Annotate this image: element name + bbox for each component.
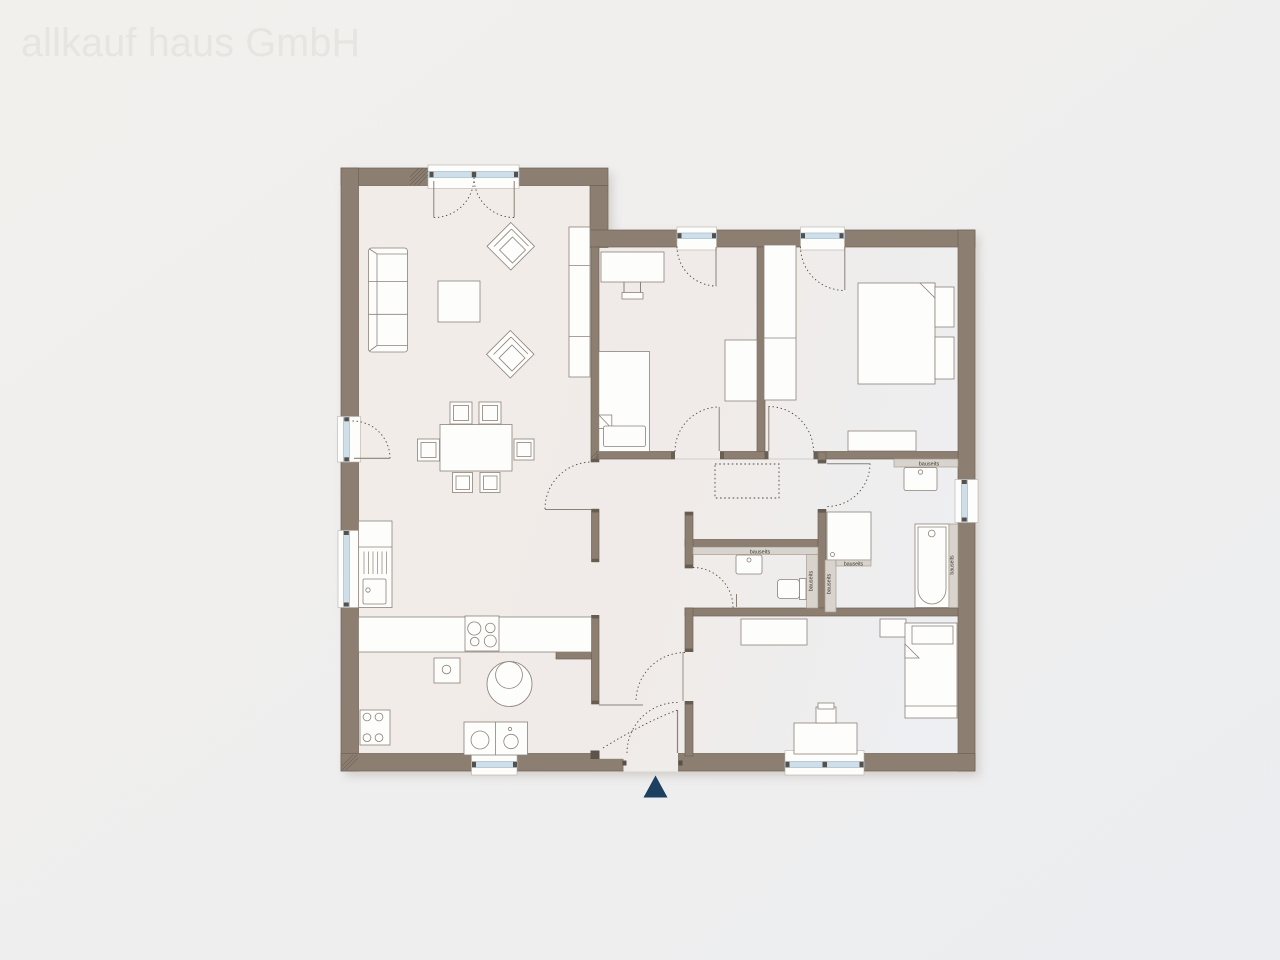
svg-text:bauseits: bauseits	[844, 561, 864, 567]
svg-text:bauseits: bauseits	[809, 571, 815, 592]
svg-text:bauseits: bauseits	[919, 462, 940, 468]
svg-text:bauseits: bauseits	[827, 574, 833, 595]
svg-text:bauseits: bauseits	[950, 555, 956, 575]
svg-text:allkauf haus GmbH: allkauf haus GmbH	[21, 21, 360, 65]
